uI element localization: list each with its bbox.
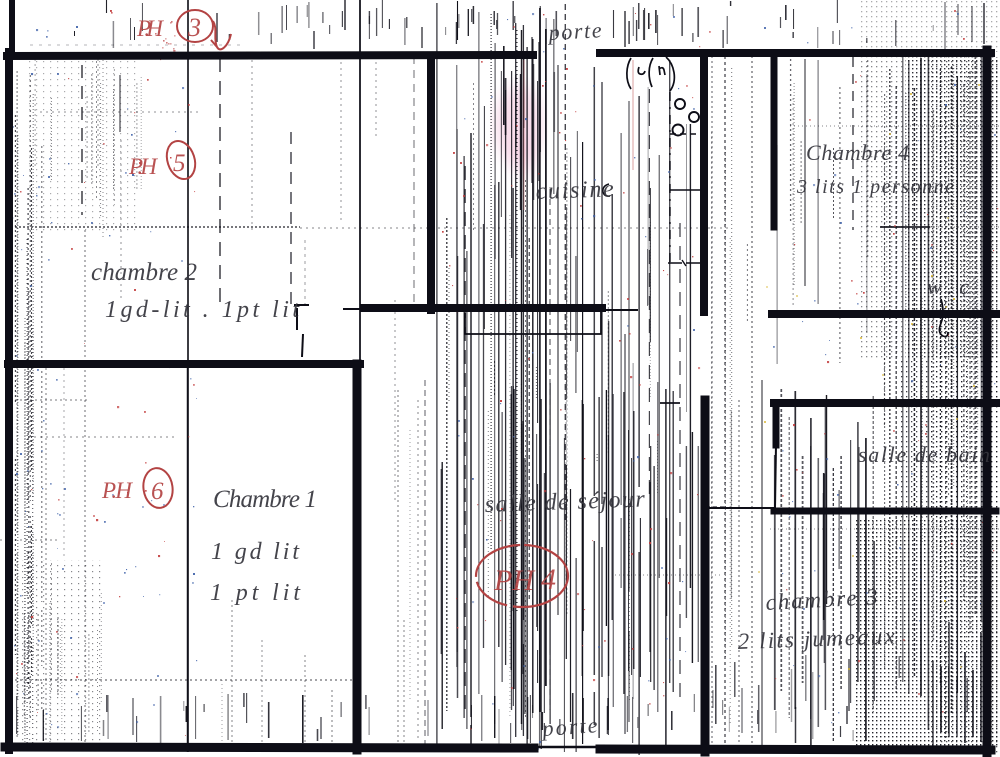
svg-text:Chambre 4: Chambre 4 bbox=[806, 140, 909, 165]
svg-text:4: 4 bbox=[541, 563, 556, 596]
svg-text:6: 6 bbox=[151, 478, 164, 505]
svg-text:P.H: P.H bbox=[101, 478, 133, 503]
svg-text:porte: porte bbox=[540, 712, 599, 741]
svg-text:P.H: P.H bbox=[136, 16, 164, 41]
svg-text:P.H: P.H bbox=[128, 154, 158, 179]
svg-text:3 lits 1 personne: 3 lits 1 personne bbox=[796, 176, 954, 198]
svg-text:PH: PH bbox=[493, 564, 536, 597]
svg-text:Chambre 1: Chambre 1 bbox=[213, 486, 317, 513]
svg-text:3: 3 bbox=[187, 13, 201, 42]
svg-text:chambre 2: chambre 2 bbox=[91, 259, 197, 286]
svg-text:porte: porte bbox=[546, 17, 602, 45]
svg-text:5: 5 bbox=[173, 150, 186, 177]
svg-text:w.c: w.c bbox=[927, 274, 969, 299]
